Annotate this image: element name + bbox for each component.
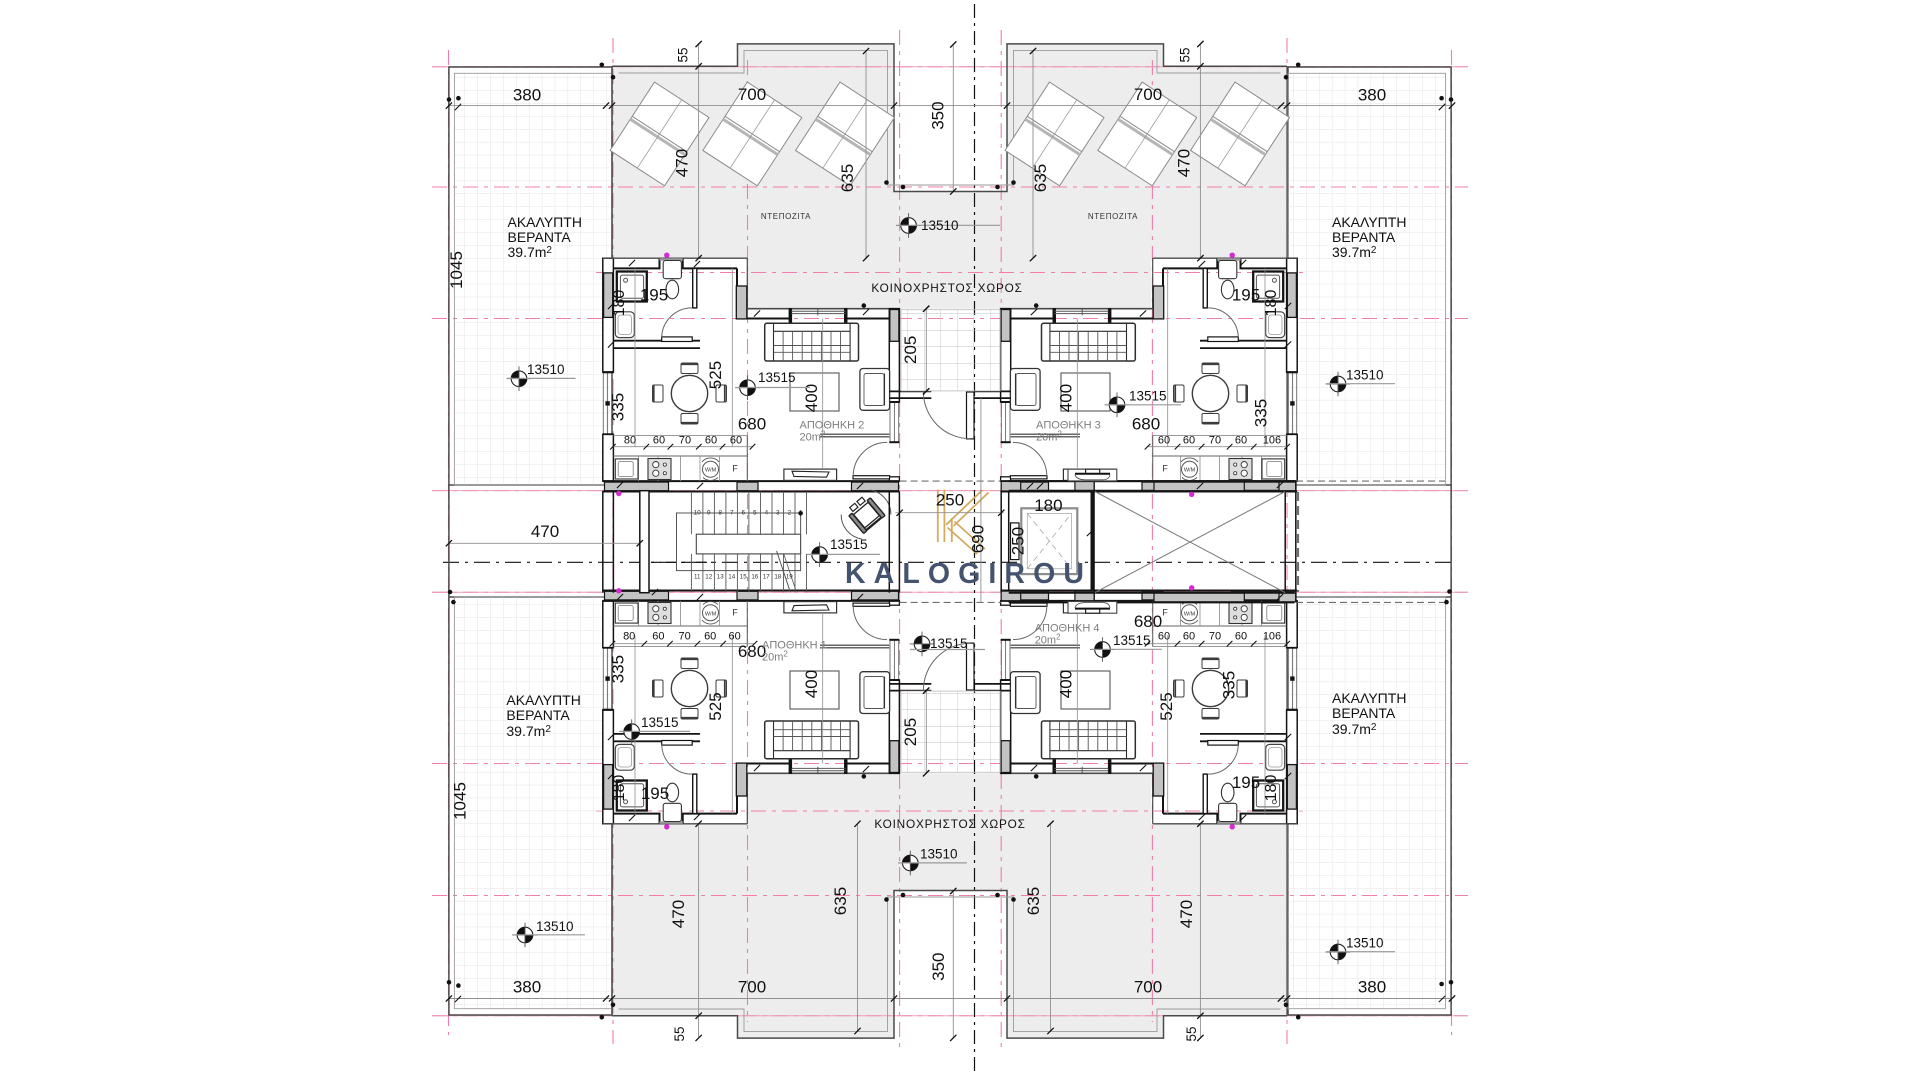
svg-text:205: 205 — [901, 336, 920, 364]
svg-text:F: F — [732, 464, 738, 474]
svg-text:70: 70 — [1209, 434, 1221, 446]
svg-text:400: 400 — [1057, 384, 1076, 412]
svg-text:39.7m2: 39.7m2 — [1332, 244, 1377, 260]
svg-text:19: 19 — [786, 574, 793, 581]
svg-text:W/M: W/M — [705, 612, 717, 618]
svg-text:F: F — [1162, 464, 1168, 474]
svg-text:7: 7 — [730, 510, 734, 517]
svg-text:60: 60 — [653, 434, 665, 446]
svg-text:2: 2 — [788, 510, 792, 517]
svg-text:60: 60 — [705, 434, 717, 446]
svg-text:ΝΤΕΠΟΖΙΤΑ: ΝΤΕΠΟΖΙΤΑ — [761, 212, 811, 221]
svg-text:ΑΠΟΘΗΚΗ 4: ΑΠΟΘΗΚΗ 4 — [1035, 623, 1100, 635]
svg-text:13515: 13515 — [930, 636, 968, 651]
svg-text:380: 380 — [1358, 86, 1386, 105]
svg-text:195: 195 — [1232, 773, 1260, 792]
svg-text:10: 10 — [694, 510, 701, 517]
svg-text:13510: 13510 — [920, 846, 958, 861]
svg-text:39.7m2: 39.7m2 — [508, 244, 553, 260]
svg-text:60: 60 — [704, 631, 716, 643]
svg-text:470: 470 — [531, 522, 559, 541]
svg-text:60: 60 — [1235, 434, 1247, 446]
svg-text:106: 106 — [1263, 434, 1281, 446]
svg-text:5: 5 — [753, 510, 757, 517]
svg-text:525: 525 — [706, 361, 725, 389]
svg-text:700: 700 — [1134, 978, 1162, 997]
svg-text:335: 335 — [1252, 399, 1271, 427]
svg-text:ΝΤΕΠΟΖΙΤΑ: ΝΤΕΠΟΖΙΤΑ — [1088, 212, 1138, 221]
svg-text:335: 335 — [609, 393, 628, 421]
svg-text:690: 690 — [969, 525, 988, 553]
svg-text:4: 4 — [765, 510, 769, 517]
svg-text:KALOGIROU: KALOGIROU — [845, 558, 1092, 590]
svg-text:13515: 13515 — [641, 715, 679, 730]
svg-text:9: 9 — [707, 510, 711, 517]
svg-text:400: 400 — [1057, 670, 1076, 698]
svg-text:195: 195 — [641, 784, 669, 803]
svg-text:350: 350 — [929, 953, 948, 981]
svg-text:635: 635 — [838, 164, 857, 192]
svg-text:250: 250 — [936, 491, 964, 510]
svg-text:13510: 13510 — [1346, 936, 1384, 951]
svg-text:470: 470 — [1177, 900, 1196, 928]
svg-text:525: 525 — [1157, 692, 1176, 720]
svg-text:F: F — [732, 608, 738, 618]
svg-text:55: 55 — [672, 1026, 687, 1041]
svg-text:635: 635 — [1031, 164, 1050, 192]
svg-text:70: 70 — [679, 434, 691, 446]
svg-text:60: 60 — [1183, 631, 1195, 643]
svg-text:13510: 13510 — [536, 919, 574, 934]
svg-text:13: 13 — [717, 574, 724, 581]
svg-text:12: 12 — [705, 574, 712, 581]
svg-text:13515: 13515 — [1129, 389, 1167, 404]
svg-text:W/M: W/M — [1184, 468, 1196, 474]
svg-text:ΑΠΟΘΗΚΗ 2: ΑΠΟΘΗΚΗ 2 — [800, 420, 865, 432]
svg-text:ΑΚΑΛΥΠΤΗ: ΑΚΑΛΥΠΤΗ — [508, 214, 582, 230]
svg-text:70: 70 — [1209, 631, 1221, 643]
svg-text:60: 60 — [1158, 434, 1170, 446]
svg-text:ΒΕΡΑΝΤΑ: ΒΕΡΑΝΤΑ — [1332, 229, 1396, 245]
svg-text:ΑΚΑΛΥΠΤΗ: ΑΚΑΛΥΠΤΗ — [1332, 690, 1406, 706]
svg-text:13515: 13515 — [758, 370, 796, 385]
svg-text:3: 3 — [776, 510, 780, 517]
svg-text:335: 335 — [1220, 671, 1239, 699]
svg-text:18: 18 — [774, 574, 781, 581]
svg-text:380: 380 — [513, 978, 541, 997]
svg-text:680: 680 — [738, 415, 766, 434]
svg-text:ΒΕΡΑΝΤΑ: ΒΕΡΑΝΤΑ — [506, 707, 570, 723]
svg-text:195: 195 — [640, 286, 668, 305]
svg-text:ΑΚΑΛΥΠΤΗ: ΑΚΑΛΥΠΤΗ — [1332, 214, 1406, 230]
svg-text:335: 335 — [609, 655, 628, 683]
svg-text:55: 55 — [676, 47, 691, 62]
svg-text:55: 55 — [1184, 1026, 1199, 1041]
svg-text:60: 60 — [730, 434, 742, 446]
svg-text:6: 6 — [741, 510, 745, 517]
svg-text:13510: 13510 — [1346, 368, 1384, 383]
svg-text:17: 17 — [763, 574, 770, 581]
svg-text:14: 14 — [728, 574, 735, 581]
svg-text:16: 16 — [751, 574, 758, 581]
svg-text:80: 80 — [623, 631, 635, 643]
svg-text:ΚΟΙΝΟΧΡΗΣΤΟΣ ΧΩΡΟΣ: ΚΟΙΝΟΧΡΗΣΤΟΣ ΧΩΡΟΣ — [871, 281, 1022, 295]
svg-text:350: 350 — [929, 101, 948, 129]
svg-text:ΚΟΙΝΟΧΡΗΣΤΟΣ ΧΩΡΟΣ: ΚΟΙΝΟΧΡΗΣΤΟΣ ΧΩΡΟΣ — [874, 817, 1025, 831]
svg-text:39.7m2: 39.7m2 — [506, 723, 551, 739]
svg-text:ΑΠΟΘΗΚΗ 1: ΑΠΟΘΗΚΗ 1 — [762, 640, 827, 652]
svg-text:60: 60 — [728, 631, 740, 643]
svg-text:1045: 1045 — [450, 782, 469, 820]
svg-text:635: 635 — [1024, 887, 1043, 915]
svg-text:180: 180 — [1034, 496, 1062, 515]
svg-text:700: 700 — [1134, 85, 1162, 104]
svg-text:700: 700 — [738, 85, 766, 104]
svg-text:180: 180 — [1263, 775, 1280, 802]
svg-text:13515: 13515 — [1113, 633, 1151, 648]
svg-text:13515: 13515 — [830, 537, 868, 552]
svg-text:1045: 1045 — [447, 251, 466, 289]
svg-text:60: 60 — [1158, 631, 1170, 643]
svg-text:W/M: W/M — [1184, 612, 1196, 618]
svg-text:700: 700 — [738, 978, 766, 997]
svg-text:380: 380 — [1358, 978, 1386, 997]
svg-text:8: 8 — [718, 510, 722, 517]
svg-text:ΑΚΑΛΥΠΤΗ: ΑΚΑΛΥΠΤΗ — [506, 692, 580, 708]
svg-text:55: 55 — [1177, 47, 1192, 62]
svg-text:ΒΕΡΑΝΤΑ: ΒΕΡΑΝΤΑ — [1332, 705, 1396, 721]
svg-text:13510: 13510 — [527, 362, 565, 377]
svg-text:680: 680 — [1134, 612, 1162, 631]
svg-text:F: F — [1162, 608, 1168, 618]
svg-text:60: 60 — [1183, 434, 1195, 446]
svg-text:11: 11 — [694, 574, 701, 581]
svg-text:60: 60 — [652, 631, 664, 643]
svg-text:400: 400 — [802, 670, 821, 698]
svg-text:250: 250 — [1009, 527, 1028, 555]
svg-text:680: 680 — [1132, 415, 1160, 434]
svg-text:635: 635 — [831, 887, 850, 915]
svg-text:180: 180 — [611, 775, 628, 802]
svg-text:180: 180 — [1263, 290, 1280, 317]
svg-text:15: 15 — [740, 574, 747, 581]
svg-text:470: 470 — [1174, 149, 1193, 177]
svg-text:ΒΕΡΑΝΤΑ: ΒΕΡΑΝΤΑ — [508, 229, 572, 245]
svg-text:470: 470 — [673, 149, 692, 177]
svg-text:ΑΠΟΘΗΚΗ 3: ΑΠΟΘΗΚΗ 3 — [1036, 420, 1101, 432]
svg-text:525: 525 — [706, 692, 725, 720]
svg-text:195: 195 — [1232, 286, 1260, 305]
svg-text:205: 205 — [901, 718, 920, 746]
svg-text:13510: 13510 — [921, 218, 959, 233]
svg-text:470: 470 — [669, 900, 688, 928]
svg-text:39.7m2: 39.7m2 — [1332, 721, 1377, 737]
svg-text:106: 106 — [1263, 631, 1281, 643]
svg-text:60: 60 — [1235, 631, 1247, 643]
svg-text:70: 70 — [678, 631, 690, 643]
svg-text:W/M: W/M — [705, 468, 717, 474]
svg-text:80: 80 — [624, 434, 636, 446]
svg-text:380: 380 — [513, 86, 541, 105]
